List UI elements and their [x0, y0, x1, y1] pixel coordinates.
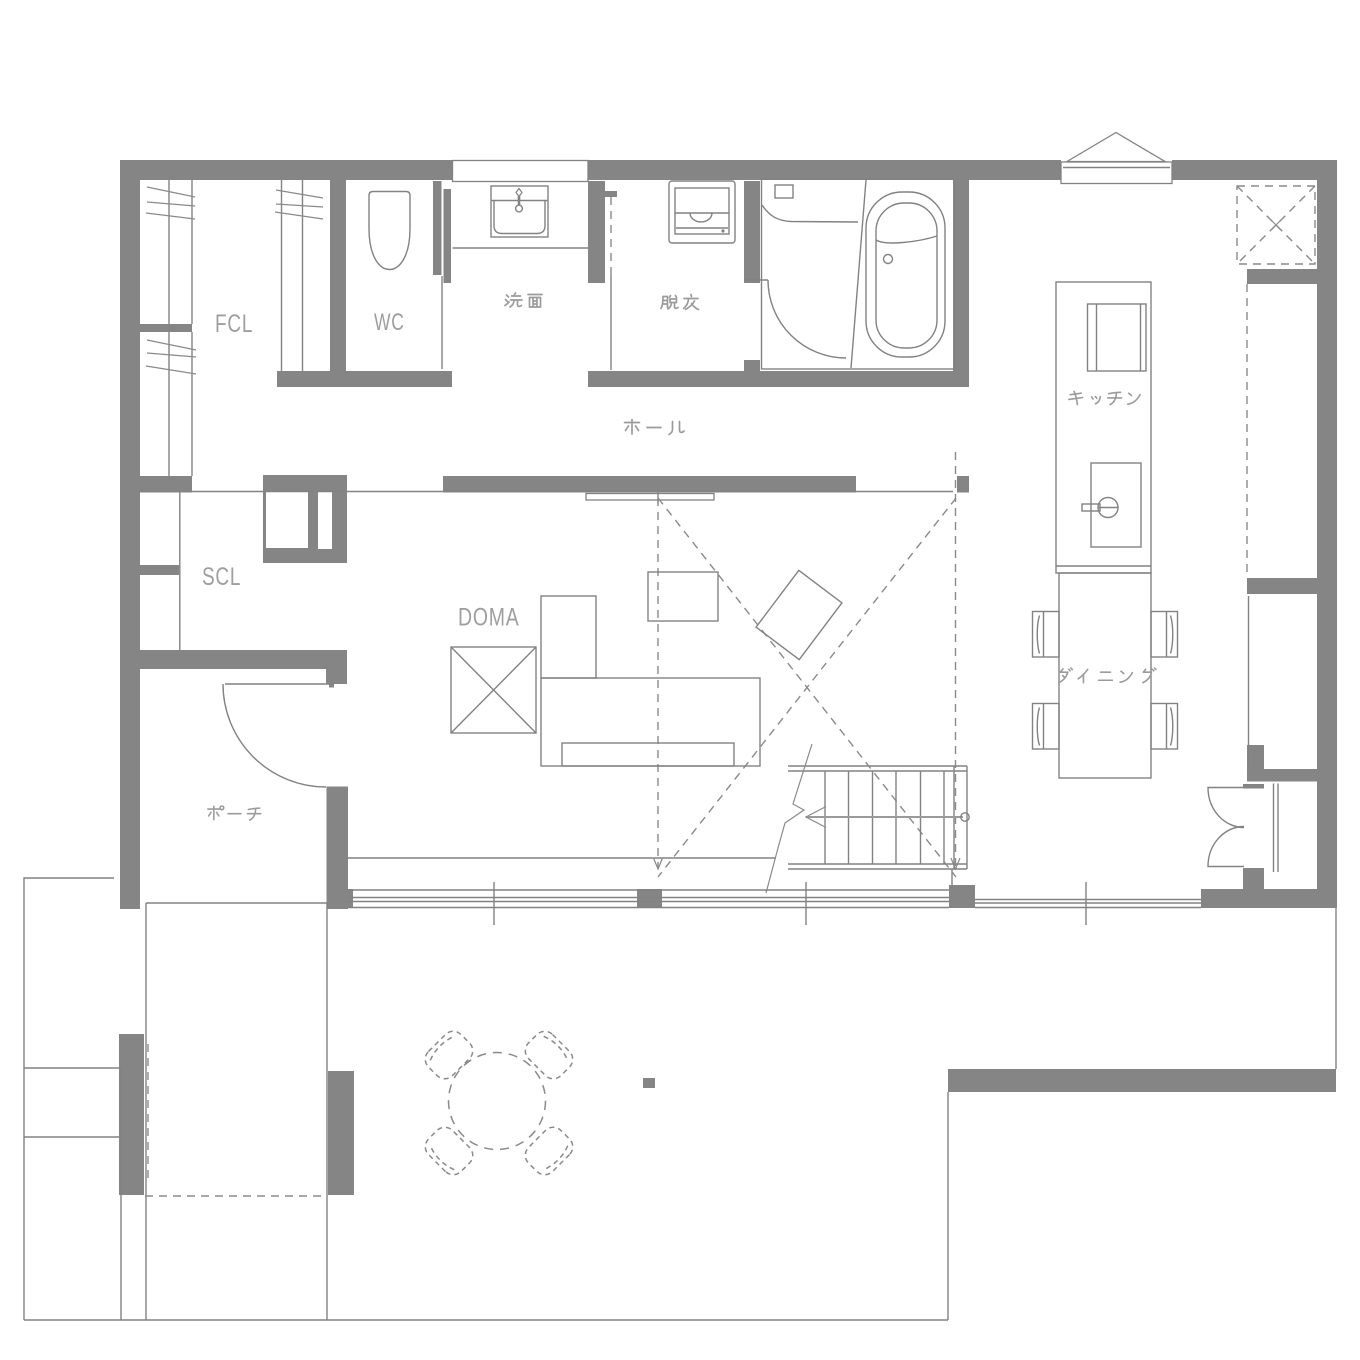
svg-text:SCL: SCL: [202, 562, 241, 590]
svg-text:DOMA: DOMA: [458, 603, 520, 631]
svg-text:WC: WC: [374, 309, 405, 335]
svg-text:FCL: FCL: [215, 309, 253, 337]
